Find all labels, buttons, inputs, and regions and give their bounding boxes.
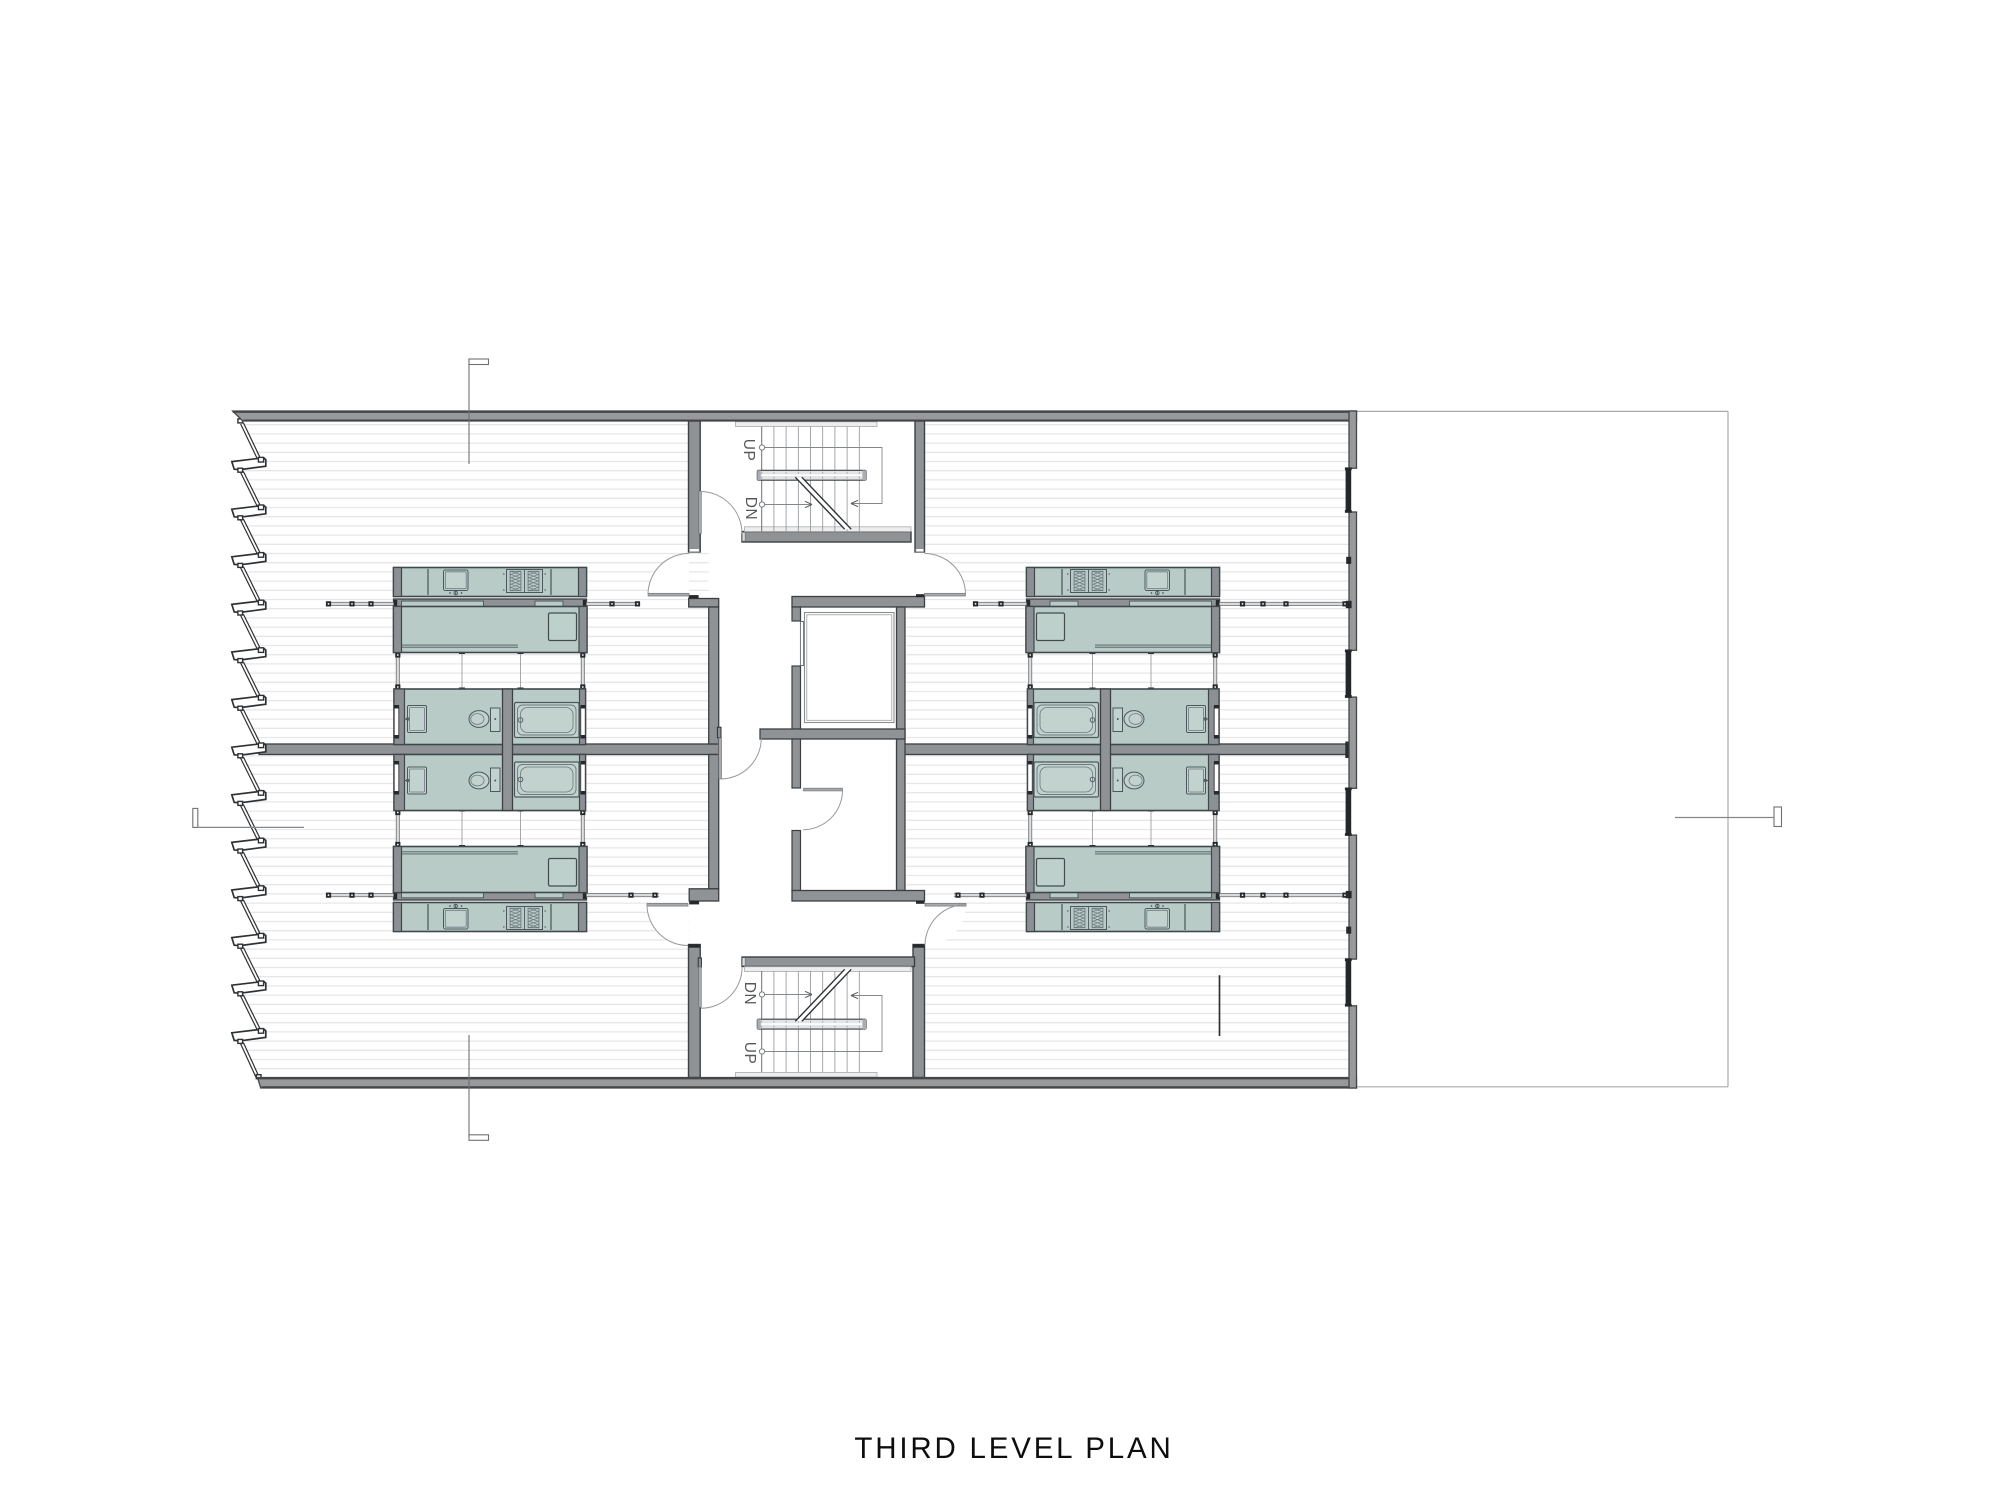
- svg-text:DN: DN: [742, 497, 759, 520]
- svg-text:THIRD LEVEL PLAN: THIRD LEVEL PLAN: [854, 1432, 1173, 1465]
- svg-text:DN: DN: [741, 982, 758, 1005]
- svg-text:UP: UP: [740, 439, 757, 462]
- svg-text:UP: UP: [741, 1042, 758, 1065]
